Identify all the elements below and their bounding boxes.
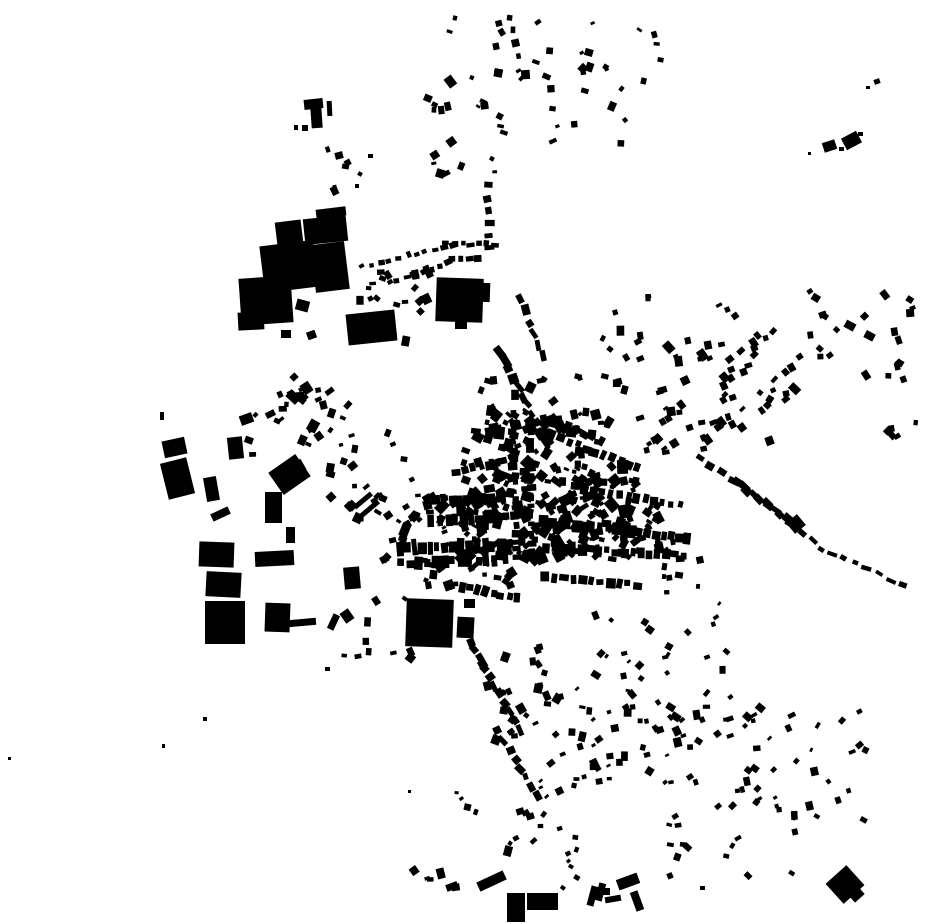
building-footprint xyxy=(466,540,474,549)
building-footprint xyxy=(544,701,552,707)
building-footprint xyxy=(791,811,798,820)
building-footprint xyxy=(913,420,918,426)
building-footprint xyxy=(551,573,558,583)
building-footprint xyxy=(199,541,235,567)
building-footprint xyxy=(521,486,531,492)
building-footprint xyxy=(442,241,449,245)
building-footprint xyxy=(719,666,725,674)
building-footprint xyxy=(393,278,399,284)
building-footprint xyxy=(343,566,361,589)
building-footprint xyxy=(513,522,519,530)
building-footprint xyxy=(617,326,625,336)
building-footprint xyxy=(346,310,398,346)
building-footprint xyxy=(486,405,496,417)
building-footprint xyxy=(369,282,376,286)
building-footprint xyxy=(545,479,552,484)
building-footprint xyxy=(461,241,466,246)
building-footprint xyxy=(808,152,811,155)
building-footprint xyxy=(511,390,519,400)
building-footprint xyxy=(499,706,508,715)
building-footprint xyxy=(703,705,710,709)
building-footprint xyxy=(485,206,492,214)
building-footprint xyxy=(284,402,289,407)
building-footprint xyxy=(484,233,493,239)
building-footprint xyxy=(638,718,643,723)
building-footprint xyxy=(595,544,600,551)
building-footprint xyxy=(610,724,619,733)
building-footprint xyxy=(483,240,489,246)
building-footprint xyxy=(547,85,555,93)
building-footprint xyxy=(596,579,603,585)
building-footprint xyxy=(491,243,499,248)
building-footprint xyxy=(495,551,504,561)
building-footprint xyxy=(606,578,616,589)
building-footprint xyxy=(286,527,295,543)
building-footprint xyxy=(637,332,644,341)
building-footprint xyxy=(589,537,593,541)
building-footprint xyxy=(858,132,863,136)
building-footprint xyxy=(455,321,467,329)
building-footprint xyxy=(594,439,599,445)
building-footprint xyxy=(400,456,407,462)
building-footprint xyxy=(549,106,556,112)
building-footprint xyxy=(662,574,666,579)
building-footprint xyxy=(366,648,372,656)
building-footprint xyxy=(590,511,595,516)
building-footprint xyxy=(696,556,704,564)
building-footprint xyxy=(624,708,632,717)
building-footprint xyxy=(537,682,543,688)
building-footprint xyxy=(616,490,623,498)
building-footprint xyxy=(310,241,350,293)
building-footprint xyxy=(520,468,530,476)
building-footprint xyxy=(160,412,164,420)
building-footprint xyxy=(352,484,357,489)
building-footprint xyxy=(580,70,586,75)
building-footprint xyxy=(355,184,359,188)
building-footprint xyxy=(205,601,245,644)
building-footprint xyxy=(476,241,482,246)
building-footprint xyxy=(493,68,503,78)
figure-ground-map-frame xyxy=(0,0,930,924)
building-footprint xyxy=(654,42,660,46)
building-footprint xyxy=(466,242,475,247)
building-footprint xyxy=(538,824,544,828)
building-footprint xyxy=(481,283,491,302)
building-footprint xyxy=(437,263,443,269)
building-footprint xyxy=(363,638,370,645)
building-footprint xyxy=(723,717,728,721)
building-footprint xyxy=(428,542,433,555)
building-footprint xyxy=(408,790,411,793)
building-footprint xyxy=(664,590,669,595)
building-footprint xyxy=(655,538,660,544)
building-footprint xyxy=(620,536,628,544)
building-footprint xyxy=(696,584,700,589)
building-footprint xyxy=(435,277,484,323)
figure-ground-map xyxy=(0,0,930,924)
building-footprint xyxy=(526,446,534,453)
building-footprint xyxy=(562,511,571,521)
building-footprint xyxy=(578,451,585,459)
building-footprint xyxy=(507,15,513,21)
building-footprint xyxy=(595,778,603,785)
building-footprint xyxy=(411,604,418,609)
building-footprint xyxy=(378,259,385,265)
building-footprint xyxy=(496,592,505,600)
building-footprint xyxy=(839,147,844,151)
building-footprint xyxy=(249,452,256,457)
building-footprint xyxy=(817,354,823,360)
building-footprint xyxy=(668,501,674,508)
building-footprint xyxy=(484,182,493,188)
building-footprint xyxy=(302,125,308,131)
building-footprint xyxy=(294,125,298,130)
building-footprint xyxy=(341,653,347,657)
building-footprint xyxy=(620,672,627,679)
building-footprint xyxy=(603,888,610,895)
building-footprint xyxy=(704,340,713,350)
building-footprint xyxy=(227,436,244,459)
building-footprint xyxy=(427,514,434,527)
building-footprint xyxy=(529,657,536,666)
building-footprint xyxy=(735,788,740,793)
building-footprint xyxy=(513,593,520,603)
building-footprint xyxy=(466,256,474,262)
building-footprint xyxy=(451,469,461,476)
building-footprint xyxy=(613,380,621,387)
building-footprint xyxy=(265,492,282,523)
building-footprint xyxy=(885,373,891,379)
building-footprint xyxy=(624,580,630,586)
building-footprint xyxy=(492,42,500,50)
building-footprint xyxy=(482,523,489,530)
building-footprint xyxy=(265,603,291,633)
building-footprint xyxy=(527,893,558,910)
building-footprint xyxy=(448,556,454,564)
building-footprint xyxy=(364,617,371,627)
building-footprint xyxy=(366,286,372,290)
building-footprint xyxy=(464,599,475,608)
building-footprint xyxy=(625,689,629,692)
building-footprint xyxy=(534,522,541,528)
building-footprint xyxy=(568,728,575,736)
building-footprint xyxy=(578,575,588,585)
building-footprint xyxy=(582,408,589,417)
building-footprint xyxy=(162,744,165,748)
building-footprint xyxy=(377,269,385,275)
building-footprint xyxy=(676,410,682,416)
building-footprint xyxy=(456,617,474,639)
building-footprint xyxy=(674,356,683,367)
building-footprint xyxy=(364,324,370,330)
building-footprint xyxy=(452,15,457,20)
building-footprint xyxy=(675,571,684,578)
building-footprint xyxy=(458,256,463,262)
building-footprint xyxy=(255,550,295,567)
building-footprint xyxy=(646,551,653,560)
building-footprint xyxy=(402,542,411,553)
building-footprint xyxy=(666,575,673,581)
building-footprint xyxy=(415,493,421,497)
building-footprint xyxy=(687,744,693,750)
building-footprint xyxy=(587,429,596,439)
building-footprint xyxy=(281,330,291,338)
building-footprint xyxy=(676,555,685,562)
building-footprint xyxy=(607,777,612,781)
building-footprint xyxy=(601,520,611,528)
building-footprint xyxy=(559,574,569,582)
building-footprint xyxy=(571,575,577,584)
building-footprint xyxy=(368,154,373,158)
building-footprint xyxy=(700,886,705,890)
building-footprint xyxy=(8,757,11,760)
building-footprint xyxy=(474,255,482,262)
building-footprint xyxy=(492,170,497,173)
building-footprint xyxy=(617,460,628,474)
building-footprint xyxy=(507,893,525,922)
building-footprint xyxy=(891,327,899,336)
building-footprint xyxy=(617,140,624,147)
building-footprint xyxy=(598,421,604,425)
building-footprint xyxy=(571,121,578,128)
building-footprint xyxy=(661,531,667,540)
building-footprint xyxy=(434,542,439,551)
building-footprint xyxy=(546,47,553,54)
building-footprint xyxy=(753,745,761,751)
building-footprint xyxy=(866,86,870,89)
building-footprint xyxy=(645,294,650,301)
building-footprint xyxy=(325,667,330,671)
building-footprint xyxy=(431,107,436,113)
building-footprint xyxy=(203,717,207,721)
building-footprint xyxy=(356,296,363,305)
building-footprint xyxy=(540,571,549,581)
building-footprint xyxy=(807,331,814,339)
building-footprint xyxy=(586,707,592,715)
building-footprint xyxy=(397,558,404,566)
building-footprint xyxy=(482,572,487,576)
building-footprint xyxy=(644,718,649,724)
building-footprint xyxy=(395,256,401,261)
building-footprint xyxy=(776,807,782,813)
building-footprint xyxy=(572,469,577,474)
building-footprint xyxy=(531,536,538,542)
building-footprint xyxy=(205,571,241,598)
building-footprint xyxy=(426,510,434,515)
building-footprint xyxy=(238,311,265,330)
building-footprint xyxy=(480,102,489,110)
building-footprint xyxy=(454,791,458,794)
building-footprint xyxy=(466,584,474,591)
building-footprint xyxy=(606,753,614,760)
building-footprint xyxy=(310,107,322,129)
building-footprint xyxy=(315,387,321,393)
building-footprint xyxy=(369,263,374,268)
building-footprint xyxy=(496,496,506,503)
building-footprint xyxy=(327,101,333,116)
building-footprint xyxy=(425,581,432,589)
building-footprint xyxy=(402,300,409,304)
building-footprint xyxy=(571,782,577,788)
building-footprint xyxy=(572,835,578,841)
building-footprint xyxy=(604,546,610,553)
building-footprint xyxy=(682,532,691,544)
building-footprint xyxy=(573,777,579,781)
building-footprint xyxy=(451,883,460,891)
building-footprint xyxy=(429,570,438,580)
building-footprint xyxy=(616,759,623,766)
building-footprint xyxy=(657,57,664,63)
building-footprint xyxy=(511,27,516,34)
building-footprint xyxy=(906,309,915,317)
building-footprint xyxy=(485,220,495,226)
building-footprint xyxy=(575,460,581,467)
building-footprint xyxy=(633,582,642,590)
building-footprint xyxy=(438,106,445,115)
